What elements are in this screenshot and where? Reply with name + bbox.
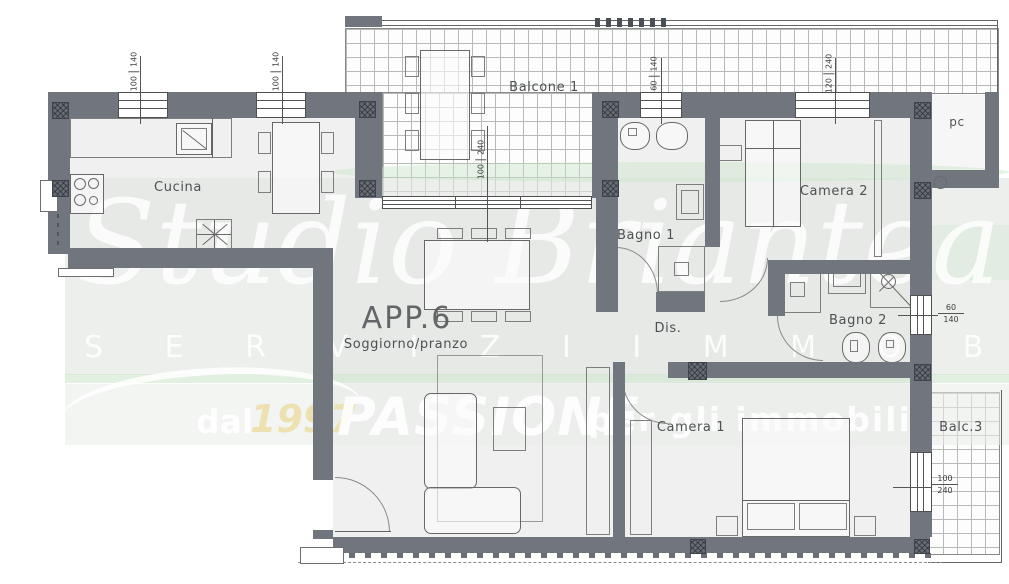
pillar-hatch [690, 539, 706, 554]
wall-door-jamb [313, 530, 333, 539]
dim-height: 240 [824, 54, 833, 69]
kitchen-window-1 [118, 92, 168, 118]
kitchen-table [272, 122, 320, 214]
dimension-line [282, 56, 283, 124]
wall-bagno2-west [768, 274, 785, 316]
dim-width: 100 [937, 474, 952, 483]
wall-living-east [596, 198, 618, 312]
balcony-table [420, 50, 470, 160]
bagno1-toilet-detail [628, 128, 637, 136]
dim-height: 240 [937, 486, 952, 495]
dimension-camera2-window: 120240 [823, 54, 834, 94]
bagno1-sink-basin [681, 190, 699, 214]
kitchen-chair [321, 171, 334, 193]
living-side-table [493, 407, 526, 451]
kitchen-window-2 [256, 92, 306, 118]
kitchen-step [58, 268, 114, 277]
dimension-line [661, 58, 662, 124]
wall-living-west [313, 248, 333, 480]
balcony-chair [471, 93, 485, 114]
room-label-bagno2: Bagno 2 [829, 313, 887, 328]
room-label-dis: Dis. [655, 321, 682, 336]
balcony-railing-dashes [595, 18, 670, 27]
wall-camera1-north-b [668, 362, 932, 378]
dim-height: 140 [943, 315, 958, 324]
dim-width: 60 [650, 81, 659, 91]
dimension-bagno1-window: 60140 [649, 56, 660, 90]
wall-camera2-south [768, 260, 910, 274]
pc-floor [932, 95, 985, 171]
wall-segment [168, 92, 256, 118]
dimension-living-window: 100240 [475, 140, 486, 180]
kitchen-chair [258, 171, 271, 193]
bagno1-bidet [656, 122, 688, 150]
dim-height: 140 [271, 52, 280, 67]
balcony-railing-line [345, 25, 998, 26]
floor-plan-canvas: Studio Briantea S E R V I Z I I M M O B … [0, 0, 1009, 584]
entrance-door-leaf [335, 531, 391, 532]
living-window-mullion [455, 196, 456, 209]
dining-chair [437, 228, 463, 239]
kitchen-chair [321, 132, 334, 154]
sofa-section-vertical [424, 393, 477, 489]
room-label-cucina: Cucina [154, 180, 202, 195]
balcony-railing-right [997, 20, 998, 93]
pillar-hatch [52, 102, 69, 119]
camera2-wardrobe [874, 120, 882, 257]
bagno2-toilet-detail [850, 340, 858, 352]
room-label-soggiorno: Soggiorno/pranzo [344, 337, 468, 352]
south-wall-hatch-strip [333, 553, 931, 558]
pillar-hatch [359, 180, 376, 197]
cooktop-burner [74, 178, 86, 190]
dimension-line [893, 487, 931, 488]
balcony-railing-block [345, 16, 382, 27]
camera1-nightstand [716, 516, 738, 536]
room-label-camera1: Camera 1 [657, 420, 725, 435]
room-label-balc3: Balc.3 [939, 420, 983, 435]
balcony-chair [405, 130, 419, 151]
pillar-hatch [914, 102, 931, 119]
kitchen-counter-divider [212, 118, 213, 158]
dimension-kitchen-window-2: 100140 [270, 52, 281, 92]
camera1-wardrobe [630, 420, 652, 535]
kitchen-chair [258, 132, 271, 154]
living-window-mullion [520, 196, 521, 209]
dining-table [424, 240, 530, 310]
dimension-line [487, 126, 488, 242]
wall-camera1-east-upper [910, 378, 932, 452]
cooktop-burner [89, 196, 98, 205]
dimension-kitchen-window-1: 100140 [128, 52, 139, 92]
balcony-chair [471, 56, 485, 77]
watermark-subtitle: S E R V I Z I I M M O B I L I A R I [84, 330, 1009, 365]
wall-camera1-west [613, 378, 625, 537]
dim-width: 100 [476, 164, 485, 179]
balc3-railing [1001, 390, 1002, 563]
room-label-pc: pc [949, 115, 964, 129]
wall-pc-east [985, 92, 999, 188]
dining-chair [505, 228, 531, 239]
pillar-hatch [602, 101, 619, 118]
dining-chair [471, 311, 497, 322]
wall-north-mid [682, 92, 795, 118]
sofa-section-horizontal [424, 487, 521, 534]
dim-width: 60 [946, 303, 956, 312]
camera1-pillow [799, 503, 847, 530]
pillar-hatch [914, 182, 931, 199]
living-shelf [586, 367, 610, 535]
dim-width: 100 [129, 76, 138, 91]
room-label-bagno1: Bagno 1 [617, 228, 675, 243]
bagno1-toilet [620, 122, 650, 150]
dim-height: 140 [129, 52, 138, 67]
pillar-hatch [359, 101, 376, 118]
room-label-balcone1: Balcone 1 [509, 80, 579, 95]
pillar-hatch [688, 362, 707, 380]
dimension-camera1-window: 100240 [932, 474, 958, 495]
camera2-window [795, 92, 870, 118]
room-label-camera2: Camera 2 [800, 184, 868, 199]
camera2-bed-center-line [773, 120, 774, 227]
bagno2-bidet-detail [886, 340, 894, 348]
wall-camera1-east-lower [910, 512, 932, 537]
dim-width: 100 [271, 76, 280, 91]
kitchen-fan-symbol [196, 219, 232, 249]
camera1-nightstand [854, 516, 876, 536]
camera1-bed-line [742, 500, 850, 501]
balcony-chair [405, 56, 419, 77]
dining-chair [471, 228, 497, 239]
dining-chair [505, 311, 531, 322]
dimension-line [898, 315, 938, 316]
pillar-hatch [914, 364, 931, 381]
watermark-since: dal [196, 402, 253, 441]
cooktop-burner [88, 178, 99, 189]
pillar-hatch [914, 539, 930, 554]
dimension-bagno2-window: 60140 [938, 303, 964, 324]
pc-corner-circle [934, 176, 947, 189]
cooktop-burner [74, 194, 86, 206]
pillar-hatch [52, 180, 69, 197]
wall-camera1-north-a [613, 362, 625, 378]
wall-south [333, 537, 930, 553]
wall-east-mid [910, 335, 932, 362]
apartment-label: APP.6 [362, 301, 453, 336]
dim-width: 120 [824, 78, 833, 93]
bagno2-shower-drain [790, 282, 805, 297]
dimension-line [140, 56, 141, 124]
dim-height: 240 [476, 140, 485, 155]
balcony-railing-line [345, 20, 998, 21]
balcony-chair [405, 93, 419, 114]
entrance-step [300, 547, 344, 564]
wall-dashed-hint [57, 214, 59, 250]
dimension-line [835, 58, 836, 124]
dim-height: 140 [650, 56, 659, 71]
camera1-pillow [747, 503, 795, 530]
camera1-window [910, 452, 932, 512]
bagno1-shower-drain [674, 262, 689, 276]
camera2-nightstand [718, 145, 742, 161]
boundary-dash-line [298, 562, 942, 563]
wall-bagno1-east [705, 92, 720, 247]
pillar-hatch [602, 180, 619, 197]
wall-kitchen-south [68, 248, 333, 268]
wall-bagno1-south [656, 292, 705, 312]
